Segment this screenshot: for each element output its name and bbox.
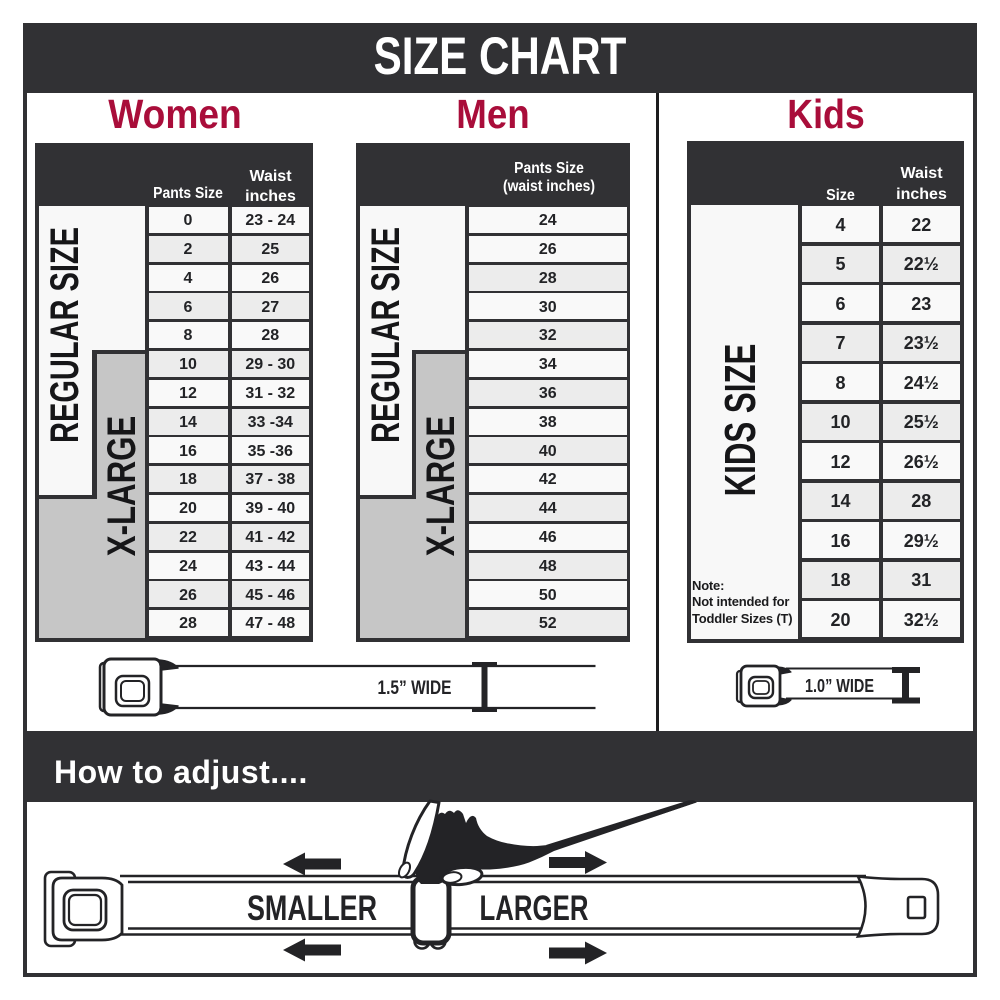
svg-text:1.5” WIDE: 1.5” WIDE: [378, 678, 452, 699]
svg-text:1.0” WIDE: 1.0” WIDE: [805, 676, 874, 696]
